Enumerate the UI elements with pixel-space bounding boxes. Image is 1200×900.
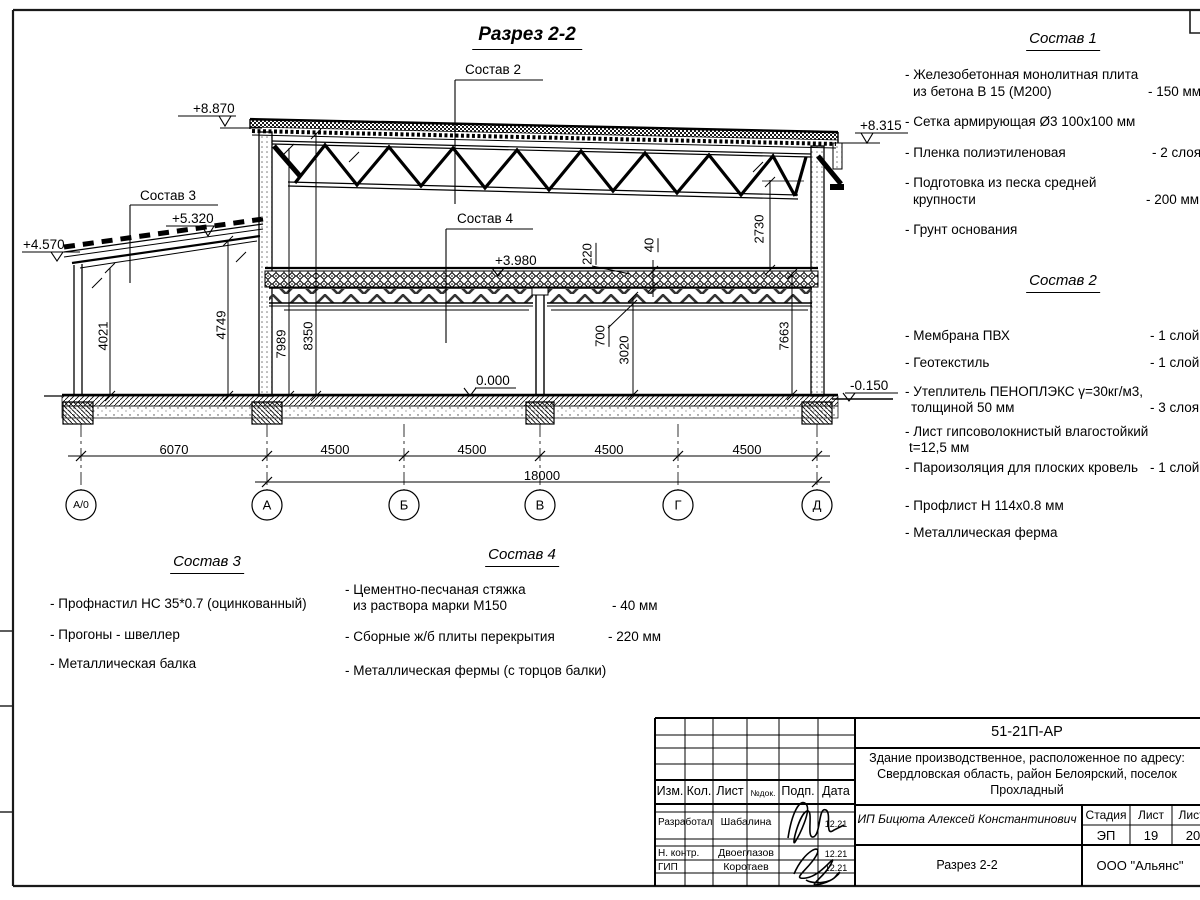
sostav2-item-text: - Пароизоляция для плоских кровель: [905, 461, 1138, 475]
sostav4-item-text: - Цементно-песчаная стяжка: [345, 583, 526, 597]
level-leanto-top: +5.320: [172, 211, 214, 226]
level-ground: -0.150: [850, 378, 888, 393]
stamp-drawing-name: Разрез 2-2: [936, 858, 997, 872]
sostav4-item-value: - 40 мм: [612, 599, 658, 613]
sostav2-item-text: - Металлическая ферма: [905, 526, 1058, 540]
axis-a: А: [263, 498, 272, 513]
axis-g: Г: [674, 498, 681, 513]
sostav2-item-value: - 3 слоя: [1150, 401, 1199, 415]
dim-truss-zone: 2730: [752, 215, 767, 244]
dim-total: 18000: [524, 468, 560, 483]
dim-span-5: 4500: [733, 442, 762, 457]
dim-span-2: 4500: [321, 442, 350, 457]
stamp-date: 12.21: [825, 819, 848, 829]
stamp-stage-label: Стадия: [1086, 808, 1127, 822]
level-leanto-eave: +4.570: [23, 237, 65, 252]
stamp-date: 12.21: [825, 849, 848, 859]
level-top-main: +8.870: [193, 101, 235, 116]
leader-label-sostav2: Состав 2: [465, 62, 521, 77]
sostav3-item-text: - Прогоны - швеллер: [50, 628, 180, 642]
level-top-right: +8.315: [860, 118, 902, 133]
drawing-sheet: Разрез 2-2 Состав 2 Состав 3 Состав 4 +8…: [0, 0, 1200, 900]
stamp-date: 12.21: [825, 863, 848, 873]
stamp-col-list: Лист: [716, 784, 743, 798]
axis-circles: [66, 490, 832, 520]
stamp-col-data: Дата: [822, 784, 850, 798]
stamp-col-podp: Подп.: [781, 784, 814, 798]
dim-slab: 220: [580, 243, 597, 265]
sostav2-item-text: толщиной 50 мм: [911, 401, 1014, 415]
level-floor2: +3.980: [495, 253, 537, 268]
axis-v: В: [536, 498, 545, 513]
stamp-object-line: Здание производственное, расположенное п…: [869, 751, 1185, 765]
dim-span-3: 4500: [458, 442, 487, 457]
sostav2-item-value: - 1 слой: [1150, 356, 1199, 370]
sostav4-item-text: - Металлическая фермы (с торцов балки): [345, 664, 606, 678]
stamp-sheet-value: 19: [1144, 828, 1158, 843]
bottom-dimensions: [68, 424, 830, 490]
stamp-name: Коротаев: [723, 861, 768, 873]
sostav3-title: Состав 3: [170, 553, 244, 574]
dim-span-4: 4500: [595, 442, 624, 457]
sostav2-title: Состав 2: [1026, 272, 1100, 293]
stamp-name: Шабалина: [721, 816, 772, 828]
stamp-sheets-label: Листов: [1179, 808, 1200, 822]
sostav4-item-text: из раствора марки М150: [353, 599, 507, 613]
stamp-role: Разработал: [658, 817, 712, 828]
sostav2-item-value: - 1 слой: [1150, 329, 1199, 343]
axis-a0: А/0: [73, 499, 89, 511]
ground-slab: [44, 395, 893, 418]
sostav2-item-text: - Лист гипсоволокнистый влагостойкий: [905, 425, 1148, 439]
axis-b: Б: [400, 498, 409, 513]
sostav1-title: Состав 1: [1026, 30, 1100, 51]
sostav1-item-value: - 150 мм: [1148, 85, 1200, 99]
stamp-object-line: Прохладный: [990, 783, 1063, 797]
sostav1-item-text: - Сетка армирующая Ø3 100х100 мм: [905, 115, 1135, 129]
section-title: Разрез 2-2: [472, 24, 582, 50]
sostav1-item-text: - Подготовка из песка средней: [905, 176, 1096, 190]
stamp-stage-value: ЭП: [1097, 828, 1116, 843]
sostav1-item-text: - Грунт основания: [905, 223, 1017, 237]
sostav1-item-text: - Железобетонная монолитная плита: [905, 68, 1138, 82]
sostav2-item-text: - Геотекстиль: [905, 356, 989, 370]
leader-label-sostav3: Состав 3: [140, 188, 196, 203]
floor-structure: [265, 268, 818, 396]
stamp-col-ndok: №док.: [751, 788, 776, 798]
sostav2-item-text: - Мембрана ПВХ: [905, 329, 1010, 343]
dim-leanto-left: 4021: [96, 322, 111, 351]
roof-truss: [272, 141, 811, 199]
stamp-sheets-value: 20: [1186, 828, 1200, 843]
leanto-structure: [64, 219, 263, 396]
stamp-name: Двоеглазов: [718, 847, 774, 859]
dim-floor-height: 3020: [617, 336, 632, 365]
stamp-sheet-label: Лист: [1138, 808, 1164, 822]
sostav1-item-text: из бетона В 15 (М200): [913, 85, 1052, 99]
dim-wall-inner: 7989: [274, 330, 289, 359]
dim-screed: 40: [642, 238, 659, 252]
stamp-company: ООО "Альянс": [1097, 858, 1184, 873]
dim-truss-depth: 700: [593, 325, 610, 347]
dim-wall: 8350: [301, 322, 316, 351]
dim-leanto-right: 4749: [214, 311, 229, 340]
stamp-doc-number: 51-21П-АР: [991, 724, 1063, 740]
sostav1-item-text: - Пленка полиэтиленовая: [905, 146, 1066, 160]
stamp-customer: ИП Бицюта Алексей Константинович: [857, 812, 1076, 826]
stamp-role: Н. контр.: [658, 848, 699, 859]
stamp-object-line: Свердловская область, район Белоярский, …: [877, 767, 1177, 781]
level-floor0: 0.000: [476, 373, 510, 388]
axis-d: Д: [813, 498, 822, 513]
sostav1-item-text: крупности: [913, 193, 976, 207]
stamp-role: ГИП: [658, 862, 678, 873]
sostav2-item-text: - Профлист Н 114х0.8 мм: [905, 499, 1064, 513]
sostav2-item-value: - 1 слой: [1150, 461, 1199, 475]
stamp-col-izm: Изм.: [657, 784, 684, 798]
dim-right-height: 7663: [777, 322, 792, 351]
sostav4-item-text: - Сборные ж/б плиты перекрытия: [345, 630, 555, 644]
stamp-col-kol: Кол.: [687, 784, 712, 798]
sostav2-item-text: t=12,5 мм: [909, 441, 969, 455]
sostav4-item-value: - 220 мм: [608, 630, 661, 644]
leader-label-sostav4: Состав 4: [457, 211, 513, 226]
sostav3-item-text: - Профнастил НС 35*0.7 (оцинкованный): [50, 597, 307, 611]
sostav2-item-text: - Утеплитель ПЕНОПЛЭКС γ=30кг/м3,: [905, 385, 1143, 399]
sostav1-item-value: - 2 слоя: [1152, 146, 1200, 160]
main-roof: [250, 119, 838, 148]
dim-span-1: 6070: [160, 442, 189, 457]
sostav4-title: Состав 4: [485, 546, 559, 567]
sostav3-item-text: - Металлическая балка: [50, 657, 196, 671]
sostav1-item-value: - 200 мм: [1146, 193, 1199, 207]
